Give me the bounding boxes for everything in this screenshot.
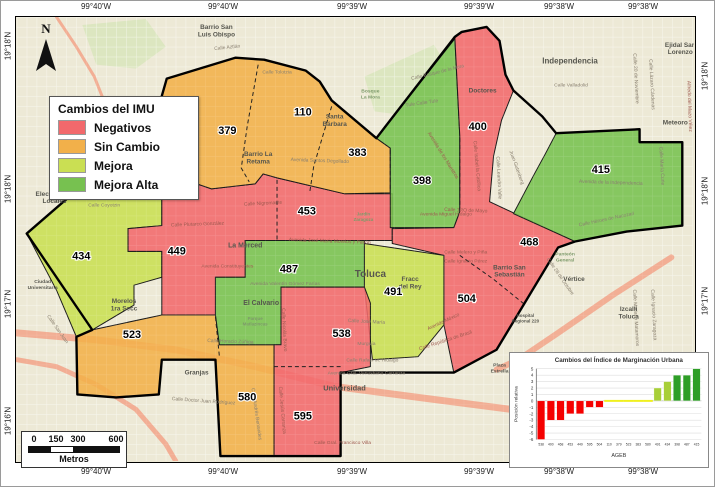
district-number-595[interactable]: 595 <box>294 410 312 422</box>
chart-xtick: 400 <box>548 442 554 446</box>
chart-ytick: 2 <box>531 386 534 391</box>
inset-chart: Cambios del Índice de Marginación Urbana… <box>509 352 709 468</box>
district-number-538[interactable]: 538 <box>332 328 350 340</box>
map-document: 99°40'W99°40'W99°39'W99°39'W99°38'W99°38… <box>0 0 715 487</box>
street-label: Murguía <box>357 341 375 347</box>
chart-bar-434[interactable] <box>664 382 671 401</box>
chart-bar-453[interactable] <box>567 401 574 414</box>
district-number-487[interactable]: 487 <box>280 263 298 275</box>
chart-xtick: 580 <box>645 442 651 446</box>
district-number-383[interactable]: 383 <box>348 147 366 159</box>
grid-label-bottom: 99°40'W <box>208 467 238 476</box>
place-label: Barrio SanSebastián <box>493 264 526 278</box>
chart-ytick: 0 <box>531 398 534 403</box>
chart-bar-504[interactable] <box>596 401 603 407</box>
district-number-580[interactable]: 580 <box>238 391 256 403</box>
place-label: Granjas <box>185 370 209 377</box>
chart-xtick: 491 <box>655 442 661 446</box>
legend-item-negativos: Negativos <box>58 120 190 135</box>
grid-label-bottom: 99°39'W <box>337 467 367 476</box>
chart-ytick: -5 <box>529 431 533 436</box>
chart-xtick: 453 <box>567 442 573 446</box>
chart-bar-398[interactable] <box>673 375 680 401</box>
street-label: Calle Valladolid <box>554 83 588 89</box>
chart-xtick: 468 <box>558 442 564 446</box>
street-label: Avenida Valentín Gómez Farías <box>250 281 320 287</box>
chart-xlabel: AGEB <box>611 453 626 459</box>
grid-label-left: 19°18'N <box>4 32 13 60</box>
north-arrow: N <box>31 21 61 69</box>
grid-label-left: 19°17'N <box>4 290 13 318</box>
place-label: La Merced <box>228 242 262 249</box>
chart-bar-379[interactable] <box>614 400 624 402</box>
grid-label-bottom: 99°39'W <box>464 467 494 476</box>
chart-ylabel: Posición relativa <box>514 386 520 422</box>
chart-ytick: 3 <box>531 379 534 384</box>
grid-label-top: 99°39'W <box>464 2 494 11</box>
chart-xtick: 383 <box>635 442 641 446</box>
street-label: Calle Rafael M. Hidalgo <box>346 358 398 364</box>
place-label: Universidad <box>323 383 366 392</box>
chart-xtick: 487 <box>684 442 690 446</box>
legend-label: Mejora <box>94 159 133 173</box>
inset-chart-svg: Cambios del Índice de Marginación Urbana… <box>510 353 708 467</box>
grid-label-left: 19°18'N <box>4 175 13 203</box>
scale-bar-graphic <box>28 446 120 453</box>
place-label: Meteoro <box>663 119 688 126</box>
district-number-110[interactable]: 110 <box>294 106 312 118</box>
swatch-negativos-icon <box>58 120 86 135</box>
chart-xtick: 415 <box>694 442 700 446</box>
street-label: Calle Tolotzia <box>262 70 292 76</box>
district-number-504[interactable]: 504 <box>458 293 476 305</box>
place-label: BosqueLa Mora <box>361 88 380 100</box>
chart-bar-580[interactable] <box>643 400 653 402</box>
chart-xtick: 379 <box>616 442 622 446</box>
chart-xtick: 110 <box>606 442 611 446</box>
chart-bar-110[interactable] <box>604 400 614 402</box>
legend-item-mejora-alta: Mejora Alta <box>58 177 190 192</box>
chart-xtick: 449 <box>577 442 583 446</box>
chart-bar-487[interactable] <box>683 375 690 401</box>
grid-label-top: 99°40'W <box>81 2 111 11</box>
district-number-453[interactable]: 453 <box>298 206 316 218</box>
district-number-523[interactable]: 523 <box>123 329 141 341</box>
district-number-400[interactable]: 400 <box>469 121 487 133</box>
chart-ytick: 5 <box>531 366 534 371</box>
chart-bar-468[interactable] <box>557 401 564 420</box>
north-label: N <box>31 21 61 37</box>
scale-bar-ticks: 0 150 300 600 <box>28 434 120 445</box>
scale-bar: 0 150 300 600 Metros <box>21 431 127 468</box>
chart-title: Cambios del Índice de Marginación Urbana <box>555 355 684 364</box>
street-label: Calle Coyotzin <box>88 203 120 209</box>
chart-ytick: -1 <box>529 405 533 410</box>
district-number-449[interactable]: 449 <box>168 245 186 257</box>
chart-bar-595[interactable] <box>586 401 593 407</box>
chart-xtick: 523 <box>626 442 632 446</box>
place-label: IzcalliToluca <box>619 306 640 320</box>
district-number-468[interactable]: 468 <box>520 236 538 248</box>
place-label: Independencia <box>542 57 598 66</box>
scale-bar-unit: Metros <box>28 454 120 464</box>
swatch-sin-cambio-icon <box>58 139 86 154</box>
place-label: Barrio LaRetama <box>244 151 273 165</box>
place-label: PanteónGeneral <box>555 251 575 263</box>
place-label: Toluca <box>355 269 387 280</box>
chart-bar-523[interactable] <box>624 400 634 402</box>
place-label: Ejidal SanLorenzo <box>665 42 694 56</box>
place-label: Vértice <box>563 276 585 283</box>
chart-xtick: 398 <box>674 442 680 446</box>
chart-ytick: -4 <box>529 424 533 429</box>
district-number-415[interactable]: 415 <box>592 164 610 176</box>
chart-xtick: 595 <box>587 442 593 446</box>
legend-item-sin-cambio: Sin Cambio <box>58 139 190 154</box>
street-label: Avenida Gral. Venustiano Carranza <box>328 371 406 377</box>
chart-bar-383[interactable] <box>633 400 643 402</box>
swatch-mejora-alta-icon <box>58 177 86 192</box>
chart-bar-400[interactable] <box>547 401 554 420</box>
scale-tick: 600 <box>108 434 123 444</box>
district-number-379[interactable]: 379 <box>218 125 236 137</box>
chart-bar-449[interactable] <box>576 401 583 414</box>
chart-xtick: 538 <box>538 442 544 446</box>
chart-bar-491[interactable] <box>654 388 661 401</box>
grid-label-right: 19°18'N <box>701 62 710 90</box>
chart-ytick: 1 <box>531 392 534 397</box>
district-number-491[interactable]: 491 <box>384 286 402 298</box>
street-label: Avenida Constituyentes <box>201 263 253 269</box>
chart-bar-415[interactable] <box>693 369 700 401</box>
chart-xtick: 434 <box>665 442 671 446</box>
chart-ytick: -2 <box>529 411 533 416</box>
legend-label: Negativos <box>94 121 151 135</box>
legend-title: Cambios del IMU <box>58 102 190 116</box>
street-label: Calle Melero y Piña <box>444 249 487 255</box>
chart-ytick: 4 <box>531 373 534 378</box>
grid-label-right: 19°17'N <box>701 287 710 315</box>
grid-label-bottom: 99°40'W <box>81 467 111 476</box>
grid-label-top: 99°39'W <box>337 2 367 11</box>
grid-label-left: 19°16'N <box>4 407 13 435</box>
grid-label-right: 19°18'N <box>701 177 710 205</box>
scale-tick: 300 <box>70 434 85 444</box>
street-label: Calle Ignacio Pérez <box>444 258 487 264</box>
grid-label-top: 99°40'W <box>208 2 238 11</box>
scale-tick: 0 <box>31 434 36 444</box>
grid-label-top: 99°38'W <box>628 2 658 11</box>
chart-ytick: -6 <box>529 437 533 442</box>
place-label: El Calvario <box>243 300 279 307</box>
district-number-434[interactable]: 434 <box>72 250 90 262</box>
swatch-mejora-icon <box>58 158 86 173</box>
chart-xtick: 504 <box>597 442 603 446</box>
street-label: Calle Gral. Francisco Villa <box>314 440 371 446</box>
grid-label-top: 99°38'W <box>544 2 574 11</box>
chart-ytick: -3 <box>529 418 533 423</box>
legend-label: Sin Cambio <box>94 140 160 154</box>
scale-tick: 150 <box>48 434 63 444</box>
place-label: Barrio SanLuis Obispo <box>198 24 235 38</box>
chart-bar-538[interactable] <box>537 401 544 440</box>
legend-item-mejora: Mejora <box>58 158 190 173</box>
map-legend: Cambios del IMU Negativos Sin Cambio Mej… <box>49 96 199 200</box>
place-label: Morelos1ra Secc <box>111 298 138 312</box>
district-number-398[interactable]: 398 <box>413 175 431 187</box>
legend-label: Mejora Alta <box>94 178 158 192</box>
north-arrow-icon <box>31 37 61 73</box>
place-label: Doctores <box>469 87 497 94</box>
